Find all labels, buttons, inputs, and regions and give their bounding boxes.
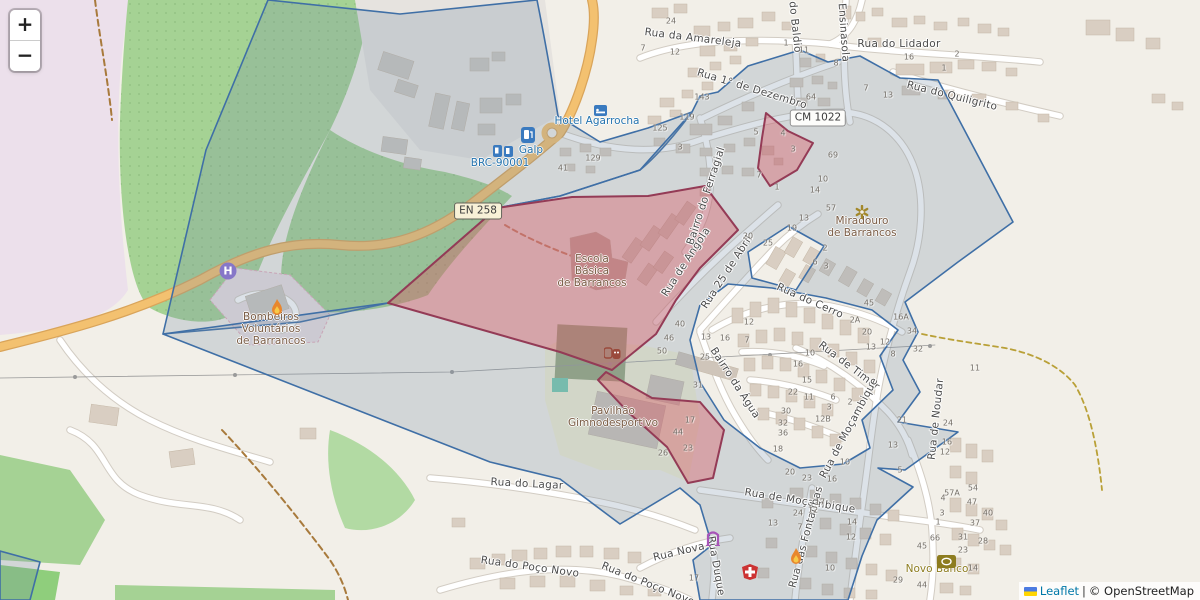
ukraine-flag-icon xyxy=(1024,587,1037,596)
map-art xyxy=(0,0,1200,600)
leaflet-link[interactable]: Leaflet xyxy=(1040,584,1079,598)
osm-link[interactable]: © OpenStreetMap xyxy=(1089,584,1194,598)
attribution-bar: Leaflet|© OpenStreetMap xyxy=(1019,582,1200,600)
zoom-in-button[interactable]: + xyxy=(10,10,40,41)
zoom-control: + − xyxy=(10,10,40,71)
attribution-separator: | xyxy=(1082,584,1086,598)
zoom-out-button[interactable]: − xyxy=(10,41,40,71)
map-canvas[interactable]: Rua da Amarelejado Baldiode EnsinasolaRu… xyxy=(0,0,1200,600)
